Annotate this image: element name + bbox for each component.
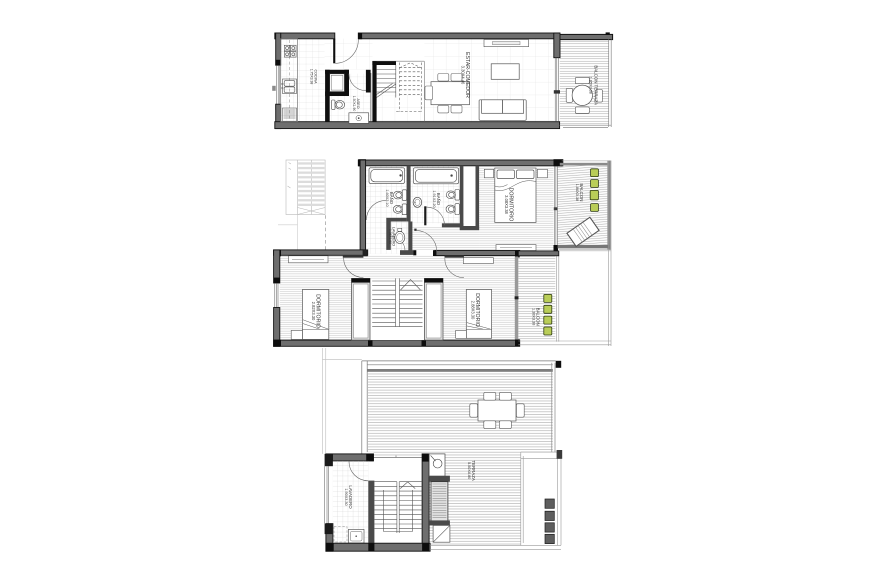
svg-text:COCINA1.75X3.38: COCINA1.75X3.38 [310,69,318,85]
svg-text:TERRAZA5.50X6.80: TERRAZA5.50X6.80 [467,460,476,481]
svg-text:LAVADERO1.06X1.60: LAVADERO1.06X1.60 [388,227,396,246]
svg-text:BAÑO1.60X2.10: BAÑO1.60X2.10 [385,189,394,206]
svg-text:BALCON1.86X3.38: BALCON1.86X3.38 [575,183,584,201]
svg-text:BALCON1.38X3.38: BALCON1.38X3.38 [532,308,541,326]
svg-text:LAVADERO1.90X3.30: LAVADERO1.90X3.30 [344,485,353,509]
svg-text:BAÑO1.91X2.20: BAÑO1.91X2.20 [432,190,441,207]
